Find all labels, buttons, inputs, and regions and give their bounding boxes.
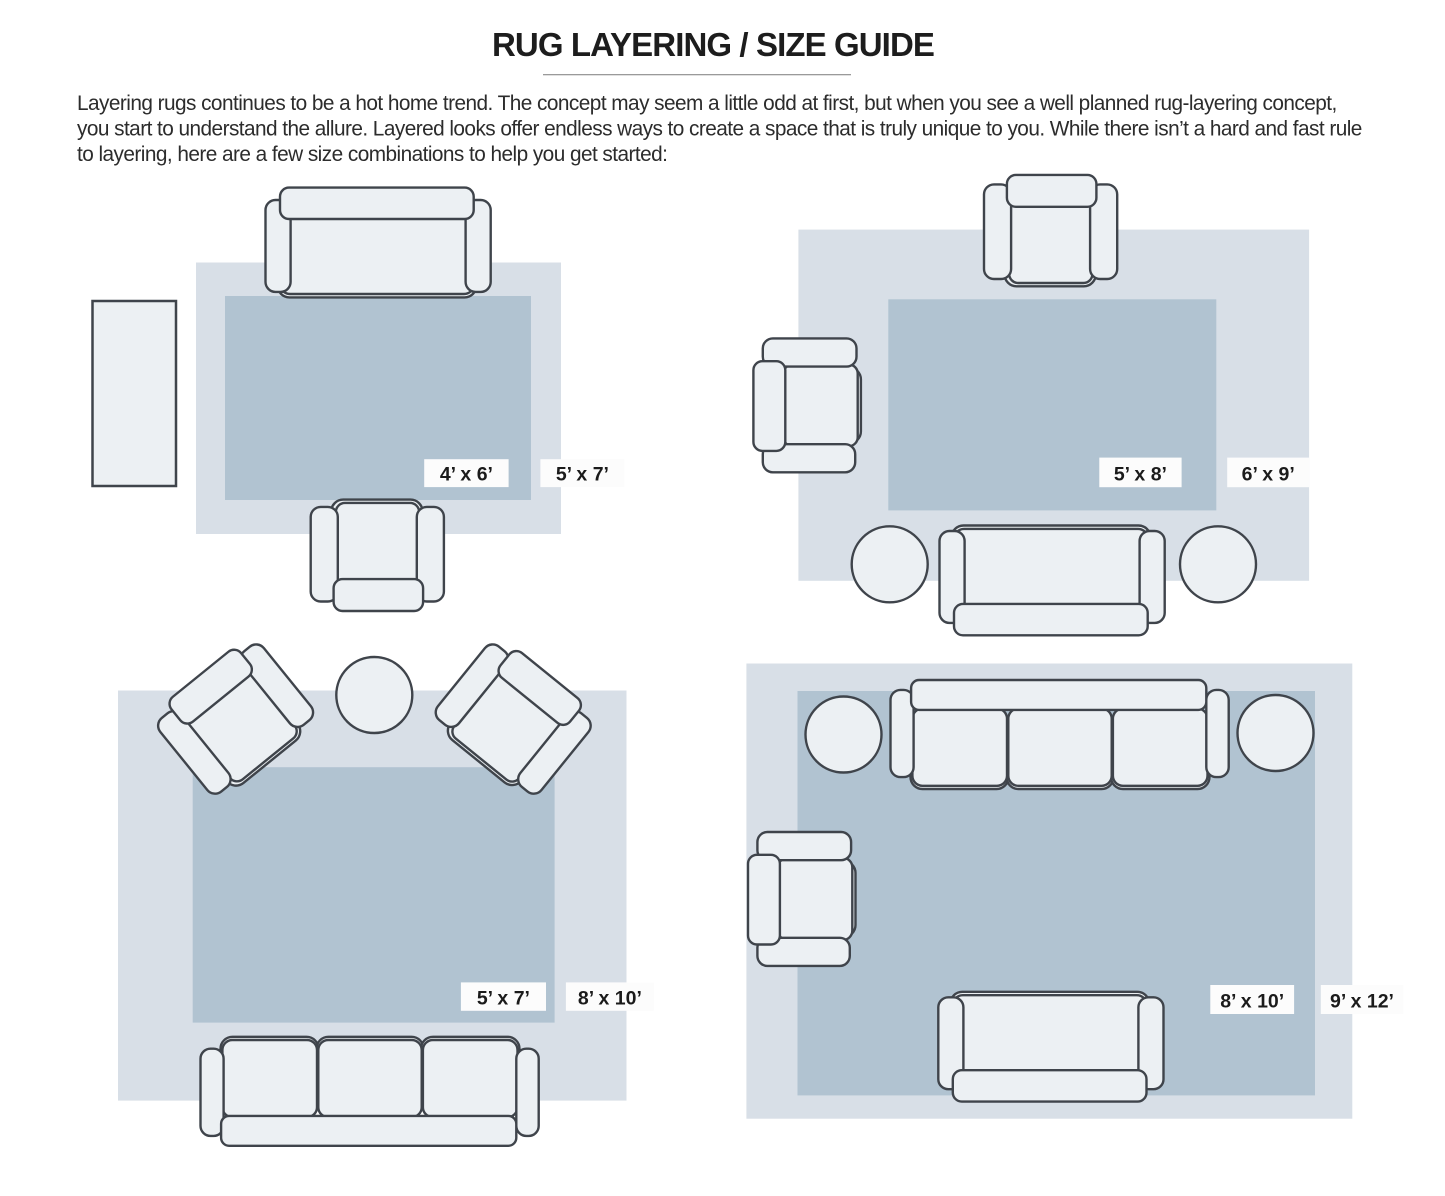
- svg-text:5’ x 7’: 5’ x 7’: [477, 987, 530, 1009]
- svg-text:9’ x 12’: 9’ x 12’: [1330, 990, 1394, 1012]
- svg-text:Layering rugs continues to be: Layering rugs continues to be a hot home…: [77, 92, 1337, 115]
- svg-text:4’ x 6’: 4’ x 6’: [440, 464, 493, 486]
- svg-text:8’ x 10’: 8’ x 10’: [1220, 990, 1284, 1012]
- svg-text:5’ x 8’: 5’ x 8’: [1114, 464, 1167, 486]
- svg-text:6’ x 9’: 6’ x 9’: [1242, 464, 1295, 486]
- svg-text:you start to understand the al: you start to understand the allure. Laye…: [77, 117, 1362, 140]
- svg-text:RUG LAYERING / SIZE GUIDE: RUG LAYERING / SIZE GUIDE: [492, 26, 934, 63]
- svg-text:8’ x 10’: 8’ x 10’: [578, 987, 642, 1009]
- svg-text:to layering, here are a few si: to layering, here are a few size combina…: [77, 143, 667, 166]
- svg-text:5’ x 7’: 5’ x 7’: [556, 464, 609, 486]
